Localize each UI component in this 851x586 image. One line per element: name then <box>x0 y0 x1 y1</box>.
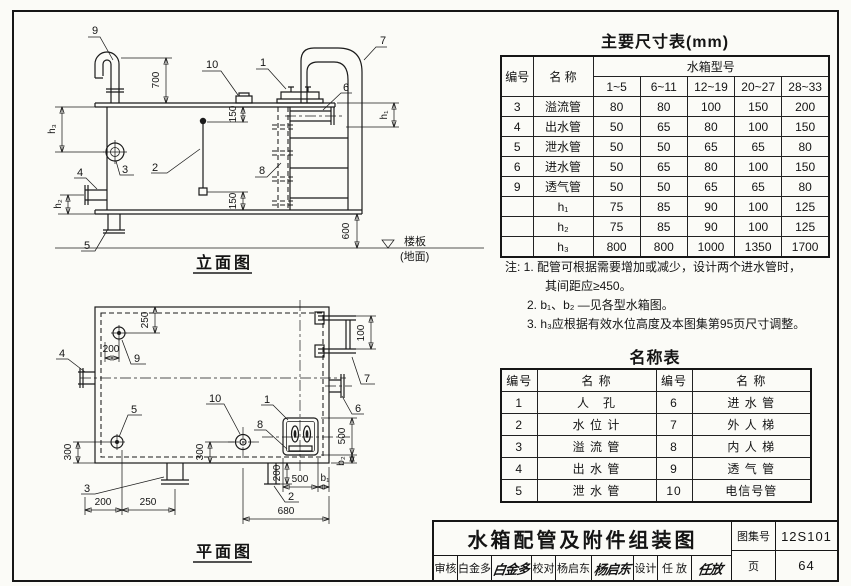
part-label-10: 10 <box>206 59 218 71</box>
cell-value: 50 <box>640 137 687 157</box>
col-header-no: 编号 <box>501 369 537 392</box>
dim-250-bottom: 250 <box>140 497 157 508</box>
cell-value: 80 <box>687 157 734 177</box>
cell-value: 125 <box>782 217 829 237</box>
model-range: 20~27 <box>735 77 782 97</box>
part-label-3: 3 <box>122 164 128 176</box>
cell-value: 100 <box>735 157 782 177</box>
sheet-title: 水箱配管及附件组装图 <box>434 522 732 556</box>
cell-name: 溢 流 管 <box>537 436 656 458</box>
table-row: 编号 名 称 编号 名 称 <box>501 369 811 392</box>
cell-name: 泄水管 <box>533 137 593 157</box>
reviewer-name: 白金多 <box>458 556 492 580</box>
table-row: 3溢流管 8080100150200 <box>501 97 829 117</box>
table-row: 5泄 水 管 10电信号管 <box>501 480 811 503</box>
cell-value: 75 <box>593 197 640 217</box>
part-label-5: 5 <box>131 404 137 416</box>
dim-600: 600 <box>341 222 352 239</box>
part-label-4: 4 <box>59 348 65 360</box>
overflow-pipe-3: 3 h₃ <box>47 107 134 176</box>
cell-no: 3 <box>501 436 537 458</box>
inlet-pipe-6-plan: 6 <box>325 374 364 415</box>
name-table: 编号 名 称 编号 名 称 1人 孔 6进 水 管 2水 位 计 7外 人 梯 … <box>500 368 812 503</box>
checker-name: 杨启东 <box>556 556 592 580</box>
cell-value: 80 <box>687 117 734 137</box>
review-label: 审核 <box>434 556 458 580</box>
note-line: 2. b₁、b₂ —见各型水箱图。 <box>505 296 839 315</box>
cell-no <box>501 217 533 237</box>
table-row: 4出水管 506580100150 <box>501 117 829 137</box>
table-row: 5泄水管 5050656580 <box>501 137 829 157</box>
cell-name: h₃ <box>533 237 593 258</box>
cell-no: 10 <box>656 480 692 503</box>
cell-name: h₁ <box>533 197 593 217</box>
cell-value: 80 <box>593 97 640 117</box>
cell-name: 出 水 管 <box>537 458 656 480</box>
cell-name: h₂ <box>533 217 593 237</box>
dim-250: 250 <box>140 311 151 328</box>
atlas-number-label: 图集号 <box>732 522 776 550</box>
designer-name: 任 放 <box>658 556 692 580</box>
cell-value: 65 <box>640 117 687 137</box>
vent-pipe-9-plan: 9 250 200 <box>103 307 160 365</box>
elevation-view-label: 立面图 <box>196 253 253 272</box>
dim-200-bottom: 200 <box>95 497 112 508</box>
signal-pipe-10-plan: 10 300 <box>195 393 260 463</box>
cell-name: 进水管 <box>533 157 593 177</box>
part-label-7: 7 <box>364 373 370 385</box>
part-label-9: 9 <box>92 25 98 37</box>
cell-value: 100 <box>735 197 782 217</box>
table-row: 9透气管 5050656580 <box>501 177 829 197</box>
cell-no: 9 <box>656 458 692 480</box>
cell-value: 150 <box>782 157 829 177</box>
external-ladder-7: 7 <box>290 35 387 210</box>
ground-label: (地面) <box>400 250 429 263</box>
drawing-sheet: 楼板 (地面) 600 9 700 10 1 <box>0 0 851 586</box>
cell-no: 3 <box>501 97 533 117</box>
model-range: 28~33 <box>782 77 829 97</box>
dim-680: 680 <box>278 506 295 517</box>
drain-pipe-5-plan: 5 300 <box>63 404 142 463</box>
manhole-1: 1 <box>256 57 323 103</box>
technical-drawings: 楼板 (地面) 600 9 700 10 1 <box>12 10 500 582</box>
part-label-2: 2 <box>152 162 158 174</box>
internal-ladder-8: 8 <box>255 107 294 210</box>
cell-value: 65 <box>735 177 782 197</box>
dim-150-top: 150 <box>228 105 239 122</box>
part-label-7: 7 <box>380 35 386 47</box>
outlet-pipe-4-plan: 4 <box>56 348 95 388</box>
bottom-dimensions: 200 250 <box>85 450 175 515</box>
col-header-name: 名 称 <box>537 369 656 392</box>
external-ladder-7-plan: 7 100 <box>315 312 376 385</box>
part-label-10: 10 <box>209 393 221 405</box>
part-label-4: 4 <box>77 167 83 179</box>
col-header-model-group: 水箱型号 <box>593 56 829 77</box>
cell-value: 1700 <box>782 237 829 258</box>
dim-150-bottom: 150 <box>228 192 239 209</box>
cell-value: 100 <box>687 97 734 117</box>
cell-no: 6 <box>656 392 692 414</box>
dim-100: 100 <box>356 324 367 341</box>
cell-no <box>501 197 533 217</box>
signature-row: 审核 白金多 白金多 校对 杨启东 杨启东 设计 任 放 任放 <box>434 556 732 580</box>
cell-value: 200 <box>782 97 829 117</box>
cell-no <box>501 237 533 258</box>
cell-name: 透气管 <box>533 177 593 197</box>
part-label-1: 1 <box>260 57 266 69</box>
cell-value: 125 <box>782 197 829 217</box>
dim-500-width: 500 <box>292 474 309 485</box>
dim-500-height: 500 <box>337 427 348 444</box>
cell-name: 泄 水 管 <box>537 480 656 503</box>
dim-h2: h₂ <box>53 199 64 209</box>
dim-b2: b₂ <box>336 456 347 466</box>
part-label-5: 5 <box>84 240 90 252</box>
cell-value: 80 <box>640 97 687 117</box>
col-header-name: 名 称 <box>692 369 811 392</box>
cell-value: 85 <box>640 197 687 217</box>
col-header-no: 编号 <box>656 369 692 392</box>
table-row: 3溢 流 管 8内 人 梯 <box>501 436 811 458</box>
cell-no: 2 <box>501 414 537 436</box>
notes: 注: 1. 配管可根据需要增加或减少，设计两个进水管时， 其间距应≥450。 2… <box>505 258 839 334</box>
cell-value: 50 <box>593 137 640 157</box>
signature-text: 任放 <box>697 558 724 578</box>
cell-no: 6 <box>501 157 533 177</box>
cell-no: 4 <box>501 117 533 137</box>
signature-text: 杨启东 <box>593 558 632 578</box>
cell-value: 85 <box>640 217 687 237</box>
name-table-title: 名称表 <box>500 344 810 368</box>
cell-value: 150 <box>782 117 829 137</box>
designer-signature: 任放 <box>692 556 728 580</box>
overflow-pipe-3-plan: 3 <box>81 463 189 495</box>
cell-value: 75 <box>593 217 640 237</box>
cell-value: 800 <box>640 237 687 258</box>
cell-value: 65 <box>687 137 734 157</box>
table-row: 2水 位 计 7外 人 梯 <box>501 414 811 436</box>
part-label-6: 6 <box>355 403 361 415</box>
part-label-1: 1 <box>264 394 270 406</box>
model-range: 1~5 <box>593 77 640 97</box>
manhole-1-plan: 1 8 <box>254 394 318 455</box>
part-label-2: 2 <box>288 491 294 503</box>
dim-h1: h₁ <box>379 110 390 120</box>
cell-value: 100 <box>735 117 782 137</box>
dim-h3: h₃ <box>47 124 58 134</box>
table-row: 1人 孔 6进 水 管 <box>501 392 811 414</box>
cell-no: 5 <box>501 137 533 157</box>
elevation-view: 楼板 (地面) 600 9 700 10 1 <box>47 25 484 273</box>
cell-value: 1350 <box>735 237 782 258</box>
part-label-6: 6 <box>343 82 349 94</box>
cell-name: 内 人 梯 <box>692 436 811 458</box>
cell-value: 65 <box>735 137 782 157</box>
floor-label: 楼板 <box>404 234 426 248</box>
reviewer-signature: 白金多 <box>492 556 532 580</box>
dim-700: 700 <box>151 71 162 88</box>
cell-value: 800 <box>593 237 640 258</box>
cell-value: 90 <box>687 217 734 237</box>
dim-300-drain: 300 <box>63 443 74 460</box>
part-label-8: 8 <box>259 165 265 177</box>
cell-no: 8 <box>656 436 692 458</box>
table-row: h₂ 758590100125 <box>501 217 829 237</box>
dimension-table-title: 主要尺寸表(mm) <box>500 28 830 52</box>
atlas-info: 图集号 12S101 页 64 <box>732 522 837 580</box>
dim-b1: b₁ <box>321 473 331 484</box>
atlas-number: 12S101 <box>776 522 837 550</box>
table-row: h₁ 758590100125 <box>501 197 829 217</box>
drain-pipe-5: 5 <box>81 214 125 252</box>
cell-value: 65 <box>640 157 687 177</box>
signal-box-10: 10 <box>202 59 252 103</box>
note-line: 3. h₃应根据有效水位高度及本图集第95页尺寸调整。 <box>505 315 839 334</box>
cell-no: 7 <box>656 414 692 436</box>
note-line: 注: 1. 配管可根据需要增加或减少，设计两个进水管时， <box>505 258 839 277</box>
cell-name: 电信号管 <box>692 480 811 503</box>
plan-view: 9 250 200 4 5 <box>56 300 376 562</box>
design-label: 设计 <box>634 556 658 580</box>
cell-value: 90 <box>687 197 734 217</box>
cell-value: 50 <box>593 177 640 197</box>
cell-no: 5 <box>501 480 537 503</box>
main-dimension-table: 编号 名 称 水箱型号 1~5 6~11 12~19 20~27 28~33 3… <box>500 55 830 258</box>
model-range: 12~19 <box>687 77 734 97</box>
page-label: 页 <box>732 551 776 580</box>
cell-name: 透 气 管 <box>692 458 811 480</box>
col-header-name: 名 称 <box>533 56 593 97</box>
dim-300-signal: 300 <box>195 443 206 460</box>
title-block: 水箱配管及附件组装图 审核 白金多 白金多 校对 杨启东 杨启东 设计 任 放 … <box>432 520 839 582</box>
signature-text: 白金多 <box>492 558 531 578</box>
page-number: 64 <box>776 551 837 580</box>
col-header-no: 编号 <box>501 56 533 97</box>
cell-value: 100 <box>735 217 782 237</box>
cell-value: 50 <box>640 177 687 197</box>
vent-pipe-9: 9 700 <box>88 25 172 103</box>
floor-line: 楼板 (地面) 600 <box>55 214 484 263</box>
cell-value: 65 <box>687 177 734 197</box>
model-range: 6~11 <box>640 77 687 97</box>
cell-value: 50 <box>593 157 640 177</box>
part-label-9: 9 <box>134 353 140 365</box>
checker-signature: 杨启东 <box>592 556 634 580</box>
cell-no: 9 <box>501 177 533 197</box>
table-row: h₃ 800800100013501700 <box>501 237 829 258</box>
cell-no: 4 <box>501 458 537 480</box>
check-label: 校对 <box>532 556 556 580</box>
water-level-gauge-2: 2 150 150 <box>151 105 248 210</box>
cell-value: 80 <box>782 177 829 197</box>
table-row: 6进水管 506580100150 <box>501 157 829 177</box>
cell-name: 进 水 管 <box>692 392 811 414</box>
outlet-pipe-4: 4 h₂ <box>53 167 107 214</box>
cell-no: 1 <box>501 392 537 414</box>
cell-name: 溢流管 <box>533 97 593 117</box>
cell-name: 外 人 梯 <box>692 414 811 436</box>
cell-name: 人 孔 <box>537 392 656 414</box>
cell-value: 1000 <box>687 237 734 258</box>
cell-value: 80 <box>782 137 829 157</box>
table-row: 4出 水 管 9透 气 管 <box>501 458 811 480</box>
dim-200-gauge: 200 <box>272 464 283 481</box>
part-label-3: 3 <box>84 483 90 495</box>
plan-view-label: 平面图 <box>196 543 253 561</box>
part-label-8: 8 <box>257 419 263 431</box>
inlet-pipe-6: 6 h₁ <box>285 82 399 127</box>
note-line: 其间距应≥450。 <box>505 277 839 296</box>
cell-value: 150 <box>735 97 782 117</box>
cell-name: 水 位 计 <box>537 414 656 436</box>
cell-value: 50 <box>593 117 640 137</box>
cell-name: 出水管 <box>533 117 593 137</box>
